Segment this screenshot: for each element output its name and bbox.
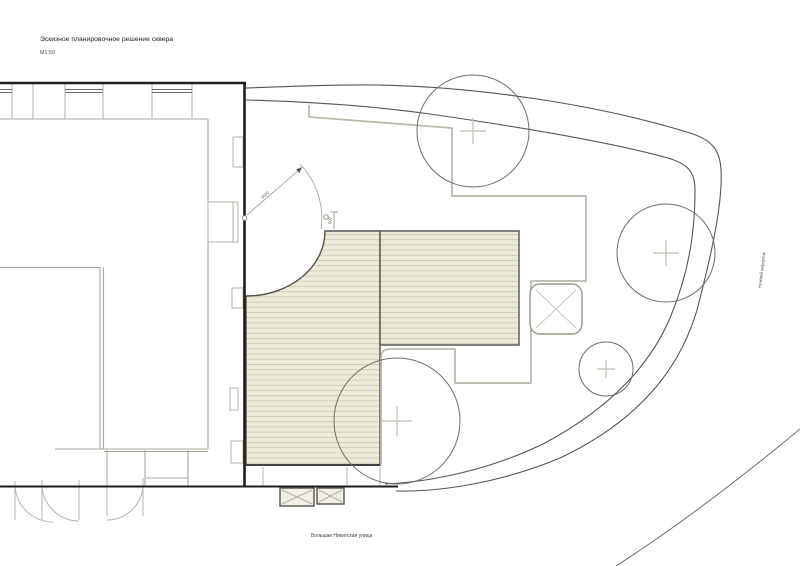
plan-drawing: 3000 500 Эскизное планировочное решение … [0, 0, 800, 566]
planter-large [530, 284, 582, 334]
facade-bays-top [12, 83, 192, 119]
hinge-point [242, 216, 247, 221]
sidewalk-strip [263, 467, 380, 486]
window-glazing-top [0, 90, 192, 93]
site-plan-sheet: 3000 500 Эскизное планировочное решение … [0, 0, 800, 566]
deck-left [246, 231, 380, 465]
tree-1 [417, 75, 529, 187]
planter-small-2 [317, 488, 344, 504]
dimension-offset-label: 500 [328, 216, 333, 224]
radius-leader-line [247, 169, 300, 215]
sheet-title: Эскизное планировочное решение сквера [40, 36, 173, 43]
street-label-right: Нижний переулок [757, 252, 766, 288]
deck-offset-dimension: 500 [328, 212, 339, 229]
deck-right [380, 231, 519, 345]
dimension-radius-label: 3000 [260, 190, 271, 200]
door-swings-bottom [15, 478, 143, 522]
deck-area [246, 231, 519, 465]
tree-2 [617, 204, 715, 302]
interior-walls [0, 119, 208, 486]
street-label-bottom: Большая Никитская улица [311, 533, 373, 539]
street-curve-bottom-right [616, 429, 800, 566]
scale-label: М1:50 [40, 50, 55, 56]
planter-small-1 [280, 488, 314, 506]
tree-3 [579, 342, 633, 396]
right-wall-pilasters [208, 137, 243, 463]
deck-door-swing: 3000 [242, 164, 328, 229]
